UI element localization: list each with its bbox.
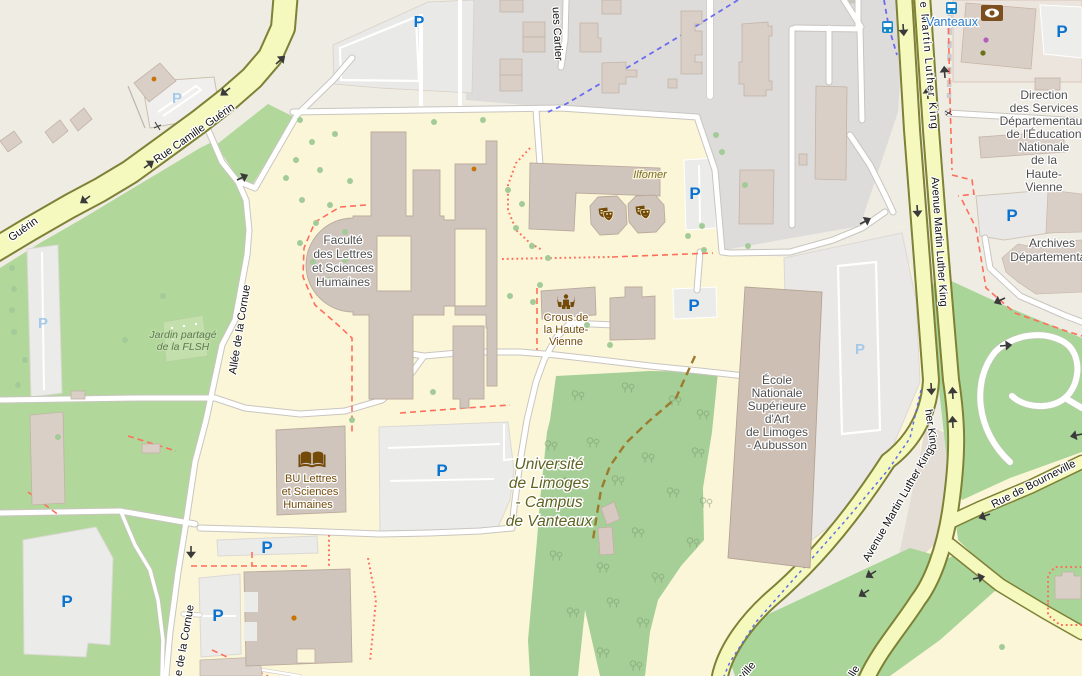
svg-text:Jardin partagé: Jardin partagé: [148, 329, 216, 341]
svg-text:Supérieure: Supérieure: [748, 399, 807, 413]
svg-text:de Limoges: de Limoges: [509, 475, 589, 492]
svg-text:de l'Éducation: de l'Éducation: [1006, 126, 1081, 141]
svg-text:P: P: [689, 184, 700, 203]
svg-text:des Lettres: des Lettres: [313, 247, 372, 261]
svg-text:et Sciences: et Sciences: [312, 261, 374, 275]
svg-text:Humaines: Humaines: [316, 275, 370, 289]
svg-text:Humaines: Humaines: [283, 499, 333, 511]
svg-text:d'Art: d'Art: [765, 412, 790, 426]
svg-text:P: P: [414, 14, 425, 31]
svg-text:BU Lettres: BU Lettres: [285, 473, 337, 485]
svg-text:la Haute-: la Haute-: [544, 324, 589, 336]
svg-text:P: P: [212, 606, 223, 625]
svg-text:P: P: [261, 538, 272, 557]
svg-text:Départementales: Départementales: [1010, 250, 1082, 264]
svg-text:École: École: [762, 372, 792, 387]
svg-text:P: P: [1006, 206, 1017, 225]
svg-text:de la FLSH: de la FLSH: [157, 341, 210, 353]
svg-text:Vanteaux: Vanteaux: [926, 15, 979, 29]
svg-text:Ilfomer: Ilfomer: [633, 169, 668, 181]
svg-text:et Sciences: et Sciences: [282, 486, 339, 498]
svg-text:P: P: [61, 592, 72, 611]
svg-text:Direction: Direction: [1020, 88, 1067, 102]
svg-text:des Services: des Services: [1010, 101, 1079, 115]
svg-text:Archives: Archives: [1029, 236, 1075, 250]
svg-text:P: P: [1056, 22, 1067, 41]
svg-text:Nationale: Nationale: [752, 386, 803, 400]
svg-text:de Vanteaux: de Vanteaux: [506, 513, 594, 530]
svg-text:P: P: [172, 90, 182, 107]
svg-text:- Aubusson: - Aubusson: [747, 438, 807, 452]
svg-text:Faculté: Faculté: [323, 233, 363, 247]
svg-text:Vienne: Vienne: [549, 336, 583, 348]
svg-text:Crous de: Crous de: [544, 312, 589, 324]
svg-text:P: P: [38, 315, 48, 332]
svg-text:Haute-: Haute-: [1026, 167, 1062, 181]
svg-text:Nationale: Nationale: [1019, 140, 1070, 154]
svg-text:de la: de la: [1031, 153, 1057, 167]
svg-text:Université: Université: [515, 456, 584, 473]
svg-text:P: P: [855, 341, 865, 358]
svg-text:- Campus: - Campus: [515, 494, 582, 511]
svg-text:Départementaux: Départementaux: [1000, 114, 1082, 128]
svg-text:P: P: [436, 461, 447, 480]
svg-text:Vienne: Vienne: [1025, 180, 1062, 194]
svg-text:P: P: [688, 296, 699, 315]
svg-text:de Limoges: de Limoges: [746, 425, 808, 439]
